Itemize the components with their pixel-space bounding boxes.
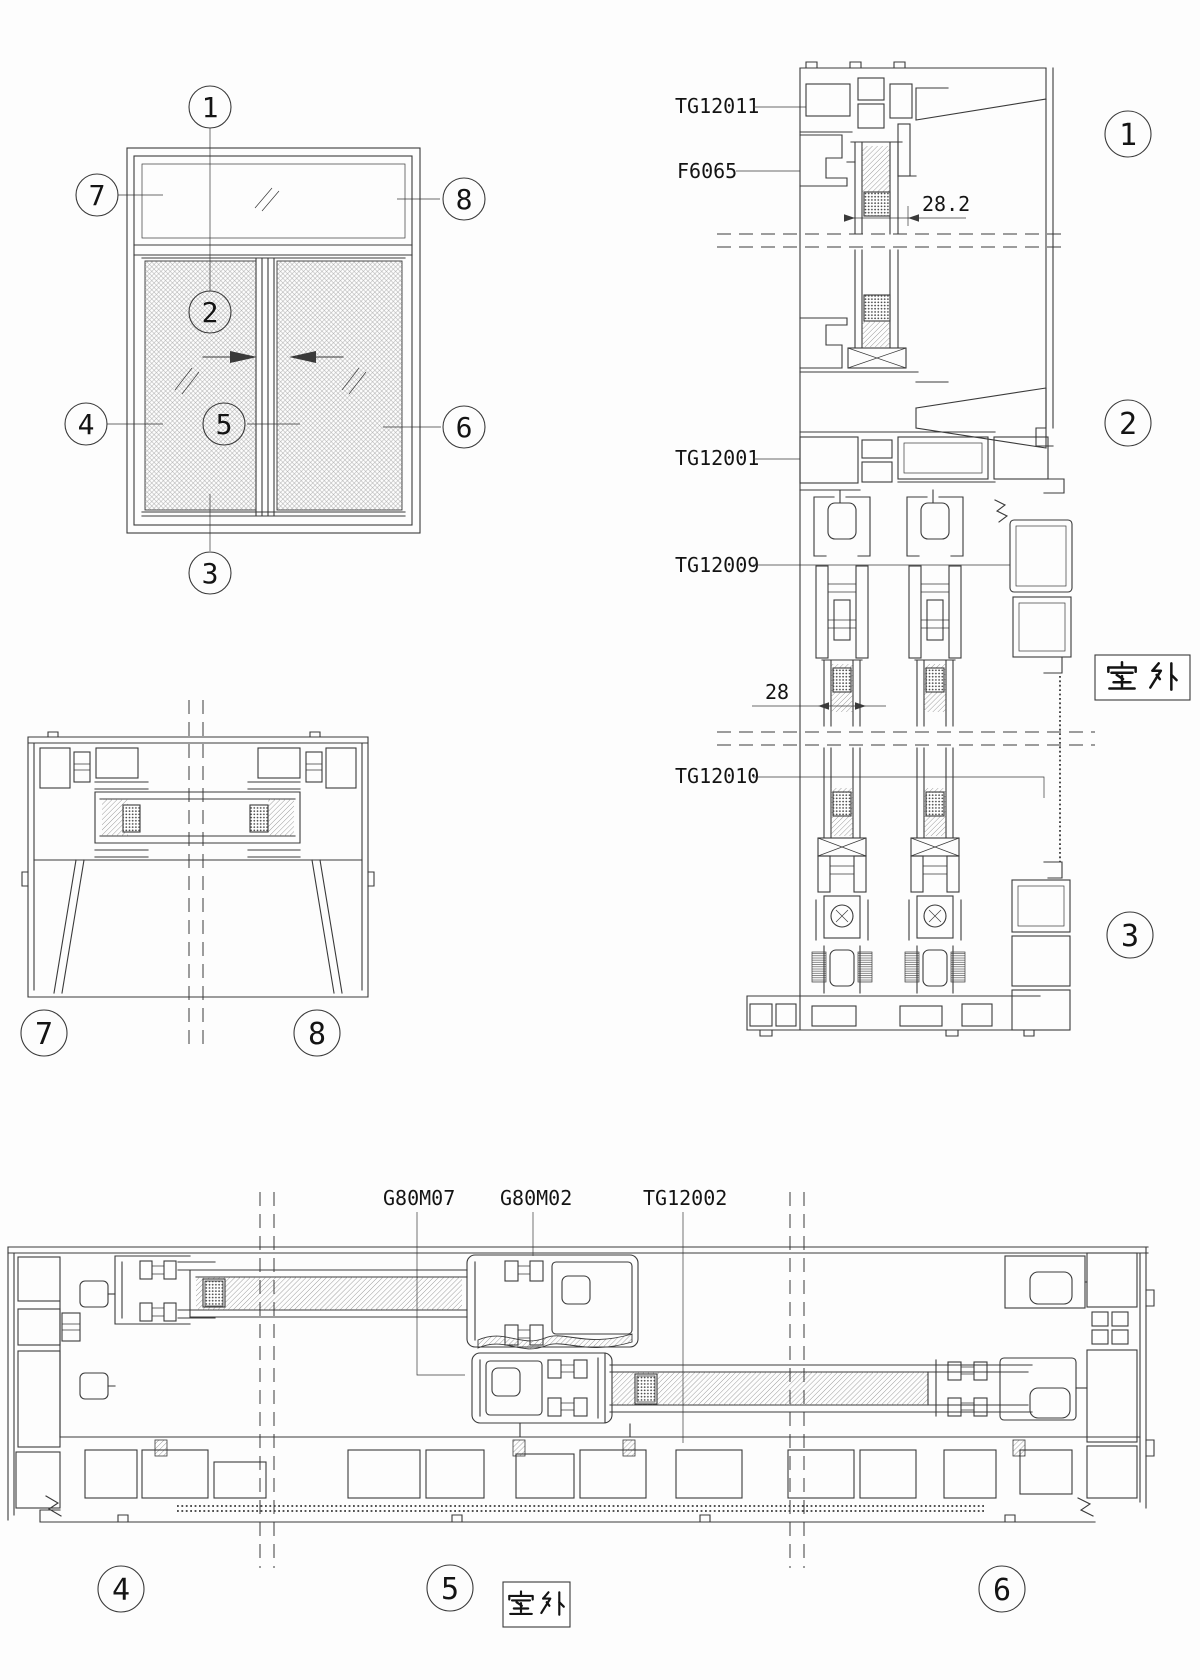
right-jamb-profile (1078, 1247, 1154, 1516)
left-sash-mesh-panel (145, 261, 256, 510)
exterior-sash-right-rail (936, 1358, 1087, 1420)
section-marker-7: 7 (21, 1010, 67, 1056)
marker-label: 5 (216, 408, 233, 441)
dimension-28: 28 (752, 680, 886, 710)
interior-track-receiver (1005, 1256, 1087, 1308)
section-marker-8: 8 (294, 1010, 340, 1056)
marker-label: 3 (202, 557, 219, 590)
section-marker-4: 4 (65, 403, 107, 445)
gasket-zigzag (995, 500, 1007, 522)
subframe-lower (800, 318, 847, 368)
marker-label: 6 (993, 1573, 1011, 1608)
bottom-track-profile (40, 1424, 1140, 1522)
section-marker-2: 2 (1105, 400, 1151, 446)
vertical-section: 28.2 (675, 62, 1190, 1036)
meeting-stiles (256, 258, 274, 516)
marker-label: 6 (456, 411, 473, 444)
section-marker-4: 4 (98, 1566, 144, 1612)
transom-profile-TG12001 (800, 432, 1064, 522)
exterior-glass-band (610, 1365, 1032, 1412)
marker-label: 5 (441, 1572, 459, 1607)
marker-label: 4 (112, 1573, 130, 1608)
exterior-meeting-stile (472, 1353, 612, 1423)
part-label-TG12002: TG12002 (643, 1186, 727, 1210)
marker-label: 8 (308, 1017, 326, 1052)
marker-label: 3 (1121, 919, 1139, 954)
section-marker-3: 3 (189, 552, 231, 594)
plan-section: G80M07 G80M02 TG12002 4 5 6 (8, 1186, 1154, 1627)
jamb-section: 7 8 (21, 700, 374, 1056)
fixed-glass-pane (142, 164, 405, 238)
part-label-F6065: F6065 (677, 159, 737, 183)
marker-label: 4 (78, 408, 95, 441)
marker-label: 1 (1119, 118, 1137, 153)
head-profile-TG12011 (806, 84, 850, 116)
weatherstrip-serration (177, 1506, 985, 1511)
center-break-lines (189, 700, 203, 1048)
right-sash-mesh-panel (277, 261, 402, 510)
dim-text: 28 (765, 680, 789, 704)
interior-sash-column (812, 490, 872, 993)
marker-label: 8 (456, 183, 473, 216)
part-label-TG12001: TG12001 (675, 446, 759, 470)
sill-profile (747, 996, 1040, 1036)
part-label-TG12011: TG12011 (675, 94, 759, 118)
dim-text: 28.2 (922, 192, 970, 216)
section-marker-1: 1 (1105, 111, 1151, 157)
interior-meeting-stile (467, 1255, 638, 1347)
elevation-view: 1 2 3 4 5 6 7 8 (65, 86, 485, 594)
exterior-sash-column (905, 490, 965, 993)
glass-symbol (255, 188, 279, 211)
head-flashing (916, 88, 1046, 120)
left-jamb-profile (8, 1247, 115, 1520)
break-lines (717, 234, 1062, 247)
marker-label: 7 (35, 1017, 53, 1052)
marker-label: 1 (202, 91, 219, 124)
transom-rail (134, 245, 412, 255)
part-label-TG12010: TG12010 (675, 764, 759, 788)
sash-rail-columns (812, 490, 965, 993)
fixed-glass-unit (848, 124, 916, 368)
sill-legs (54, 860, 342, 993)
part-label-G80M07: G80M07 (383, 1186, 455, 1210)
drawing-sheet: 1 2 3 4 5 6 7 8 (0, 0, 1200, 1680)
subframe-F6065 (800, 135, 855, 186)
section-marker-8: 8 (443, 178, 485, 220)
exterior-cover-profiles (1010, 520, 1072, 1030)
section-marker-6: 6 (979, 1566, 1025, 1612)
cad-canvas: 1 2 3 4 5 6 7 8 (0, 0, 1200, 1680)
marker-label: 7 (89, 179, 106, 212)
marker-label: 2 (1119, 407, 1137, 442)
fixed-glass-unit-plan (95, 792, 300, 843)
section-marker-3: 3 (1107, 912, 1153, 958)
outdoor-label-box (1095, 655, 1190, 700)
part-label-G80M02: G80M02 (500, 1186, 572, 1210)
marker-label: 2 (202, 296, 219, 329)
interior-glass-band (190, 1270, 467, 1317)
outdoor-label-box (503, 1582, 570, 1627)
part-label-TG12009: TG12009 (675, 553, 759, 577)
section-marker-7: 7 (76, 174, 118, 216)
section-marker-1: 1 (189, 86, 231, 128)
section-marker-6: 6 (443, 406, 485, 448)
dimension-28-2: 28.2 (844, 192, 970, 226)
break-lines (717, 732, 1095, 745)
section-marker-5: 5 (427, 1565, 473, 1611)
